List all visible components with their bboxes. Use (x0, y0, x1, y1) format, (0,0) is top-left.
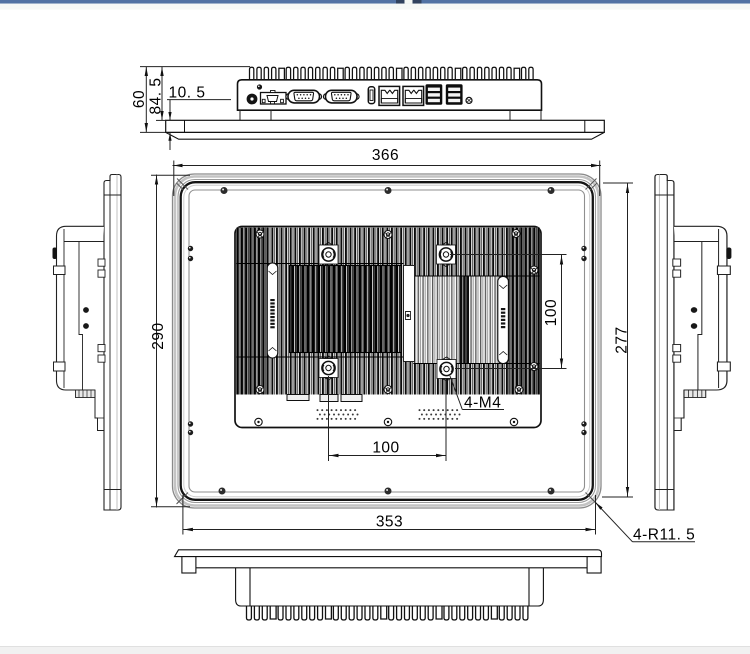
svg-text:290: 290 (150, 322, 167, 349)
svg-text:100: 100 (543, 299, 560, 326)
svg-text:84. 5: 84. 5 (148, 78, 165, 115)
svg-text:353: 353 (376, 514, 403, 531)
svg-text:366: 366 (372, 147, 399, 164)
svg-text:277: 277 (614, 326, 631, 353)
svg-text:60: 60 (131, 90, 148, 108)
svg-text:10. 5: 10. 5 (169, 85, 206, 102)
svg-text:4-R11. 5: 4-R11. 5 (633, 527, 695, 544)
svg-text:4-M4: 4-M4 (464, 395, 501, 412)
svg-text:100: 100 (372, 440, 399, 457)
